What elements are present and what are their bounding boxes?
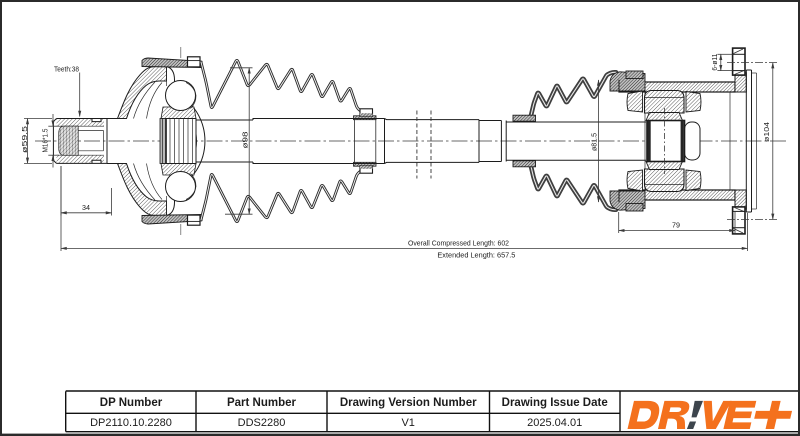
svg-text:Drawing Version Number: Drawing Version Number xyxy=(340,397,477,409)
svg-text:Drawing Issue Date: Drawing Issue Date xyxy=(502,397,608,409)
svg-text:Overall Compressed Length: 6: Overall Compressed Length: 602 xyxy=(408,239,509,248)
svg-text:DDS2280: DDS2280 xyxy=(238,417,286,429)
svg-text:Part Number: Part Number xyxy=(227,397,297,409)
svg-text:79: 79 xyxy=(672,221,680,230)
svg-text:ø98: ø98 xyxy=(240,132,249,149)
svg-text:6-ø11: 6-ø11 xyxy=(710,54,719,71)
svg-text:DP2110.10.2280: DP2110.10.2280 xyxy=(90,417,172,429)
svg-text:ø81.5: ø81.5 xyxy=(589,133,598,151)
svg-text:Teeth:38: Teeth:38 xyxy=(54,65,79,74)
svg-text:V1: V1 xyxy=(401,417,414,429)
svg-text:34: 34 xyxy=(82,203,90,212)
svg-text:ø104: ø104 xyxy=(762,122,771,142)
svg-text:M16*1.5: M16*1.5 xyxy=(41,129,50,153)
svg-text:2025.04.01: 2025.04.01 xyxy=(527,417,582,429)
svg-text:DP Number: DP Number xyxy=(100,397,163,409)
svg-text:ø59.5: ø59.5 xyxy=(20,126,29,153)
svg-text:Extended Length: 657.5: Extended Length: 657.5 xyxy=(437,251,515,260)
